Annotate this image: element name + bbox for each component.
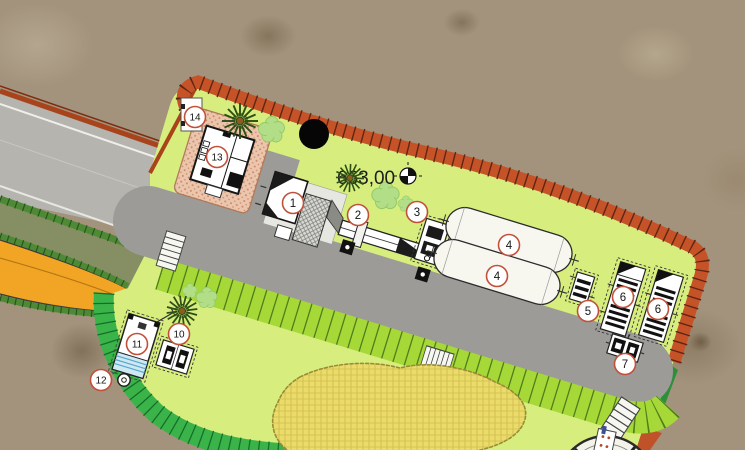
- svg-text:3: 3: [414, 207, 420, 219]
- site-plan-drawing: 663,00: [0, 0, 745, 450]
- svg-text:4: 4: [506, 240, 513, 252]
- marker-12: 12: [91, 370, 112, 391]
- site-plan-stage: 663,00: [0, 0, 745, 450]
- marker-7: 7: [615, 354, 636, 375]
- svg-text:5: 5: [585, 306, 591, 318]
- marker-3: 3: [407, 202, 428, 223]
- marker-6b: 6: [648, 299, 669, 320]
- marker-2: 2: [348, 205, 369, 226]
- svg-text:1: 1: [290, 198, 296, 210]
- svg-text:11: 11: [132, 340, 143, 351]
- svg-text:6: 6: [620, 292, 626, 304]
- marker-6a: 6: [613, 287, 634, 308]
- marker-13: 13: [207, 147, 228, 168]
- svg-text:6: 6: [655, 304, 661, 316]
- svg-text:12: 12: [95, 376, 107, 387]
- svg-text:2: 2: [355, 210, 361, 222]
- svg-text:7: 7: [622, 359, 628, 371]
- svg-text:4: 4: [494, 271, 501, 283]
- marker-14: 14: [185, 107, 206, 128]
- well-12: [118, 374, 130, 386]
- svg-text:14: 14: [189, 113, 201, 124]
- svg-text:10: 10: [173, 330, 185, 341]
- silo-black-circle: [299, 119, 329, 149]
- marker-1: 1: [283, 193, 304, 214]
- marker-5: 5: [578, 301, 599, 322]
- marker-11: 11: [127, 334, 148, 355]
- marker-4a: 4: [499, 235, 520, 256]
- svg-text:13: 13: [211, 153, 223, 164]
- marker-10: 10: [169, 324, 190, 345]
- marker-4b: 4: [487, 266, 508, 287]
